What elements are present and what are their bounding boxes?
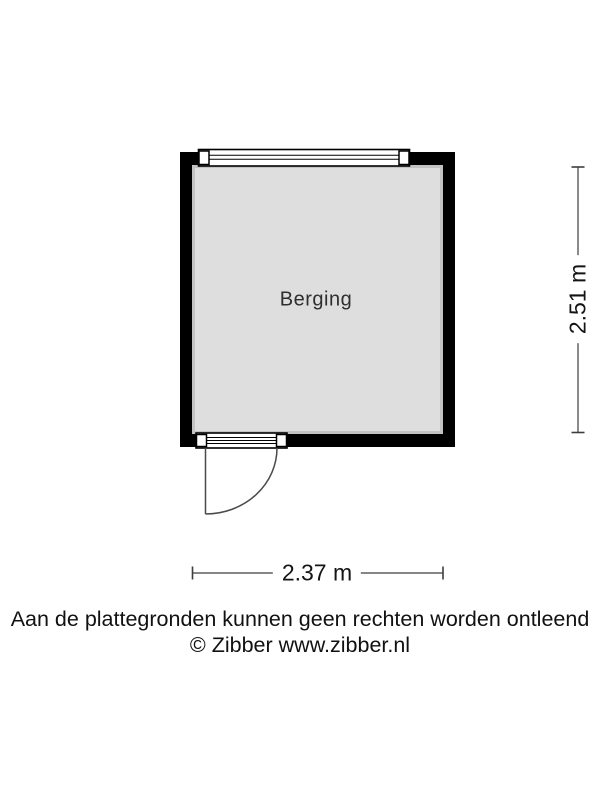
room-label: Berging (280, 289, 352, 312)
window-jamb-right (399, 151, 409, 165)
door-jamb-right (277, 435, 287, 447)
dimension-height-label: 2.51 m (565, 255, 592, 343)
door-opening (196, 433, 287, 448)
floorplan-drawing (0, 0, 600, 800)
disclaimer-text: Aan de plattegronden kunnen geen rechten… (0, 606, 600, 632)
dimension-width-label: 2.37 m (273, 560, 361, 587)
window-top (199, 150, 410, 167)
copyright-text: © Zibber www.zibber.nl (0, 632, 600, 658)
door-swing-arc (206, 448, 278, 514)
door-jamb-left (197, 435, 207, 447)
floorplan-page: Berging 2.51 m 2.37 m Aan de plattegrond… (0, 0, 600, 800)
footer: Aan de plattegronden kunnen geen rechten… (0, 606, 600, 658)
window-jamb-left (199, 151, 209, 165)
